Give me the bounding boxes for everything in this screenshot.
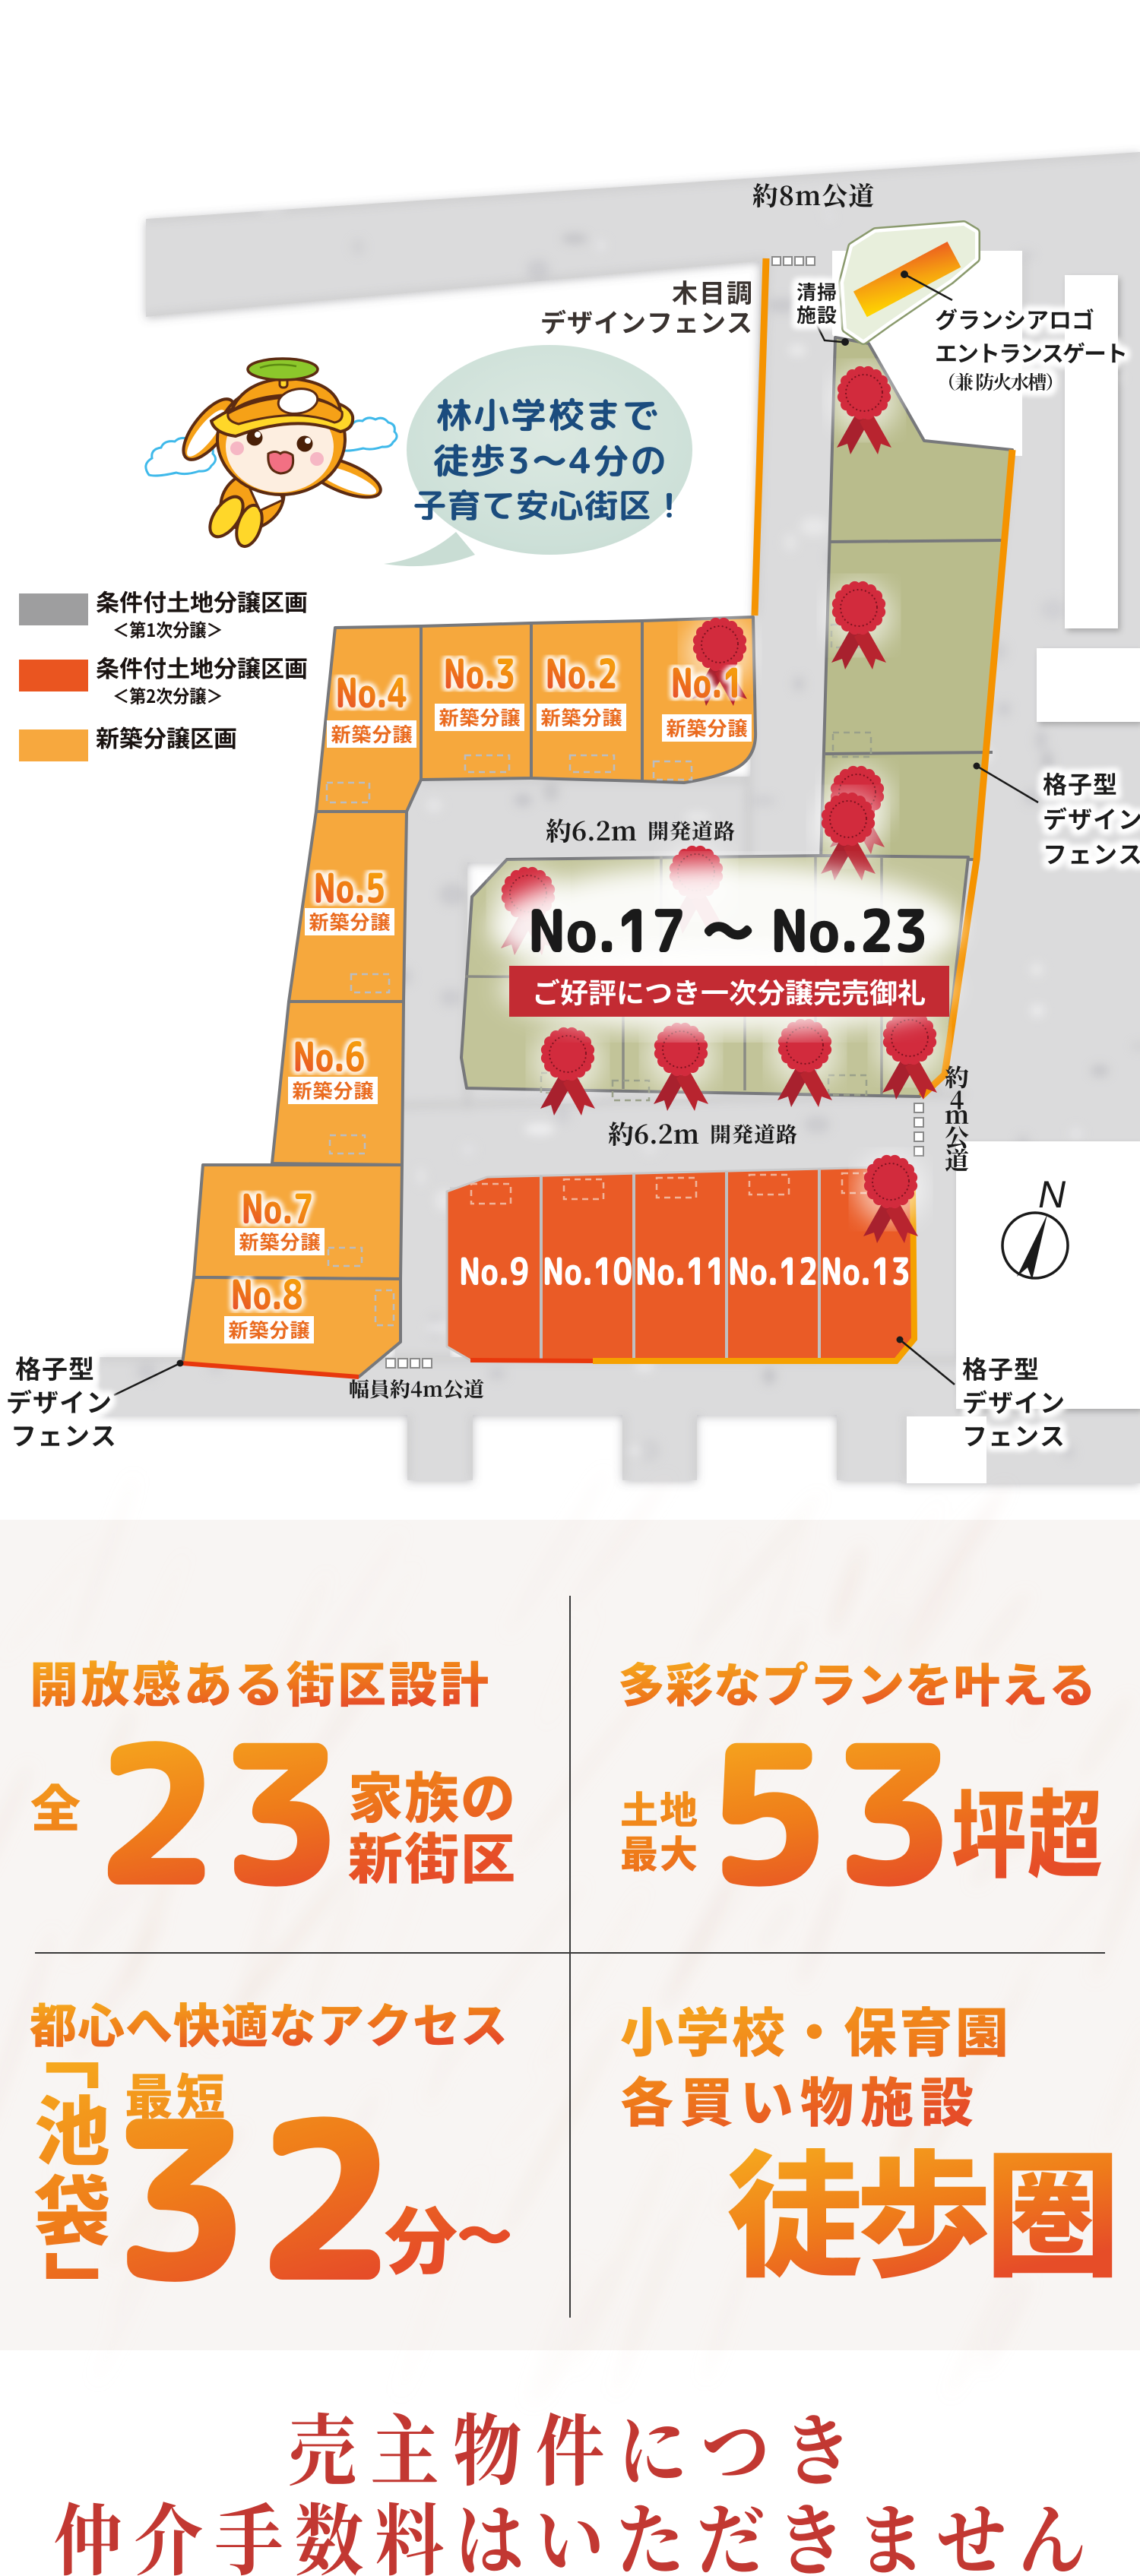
svg-text:N: N xyxy=(1038,1173,1066,1216)
